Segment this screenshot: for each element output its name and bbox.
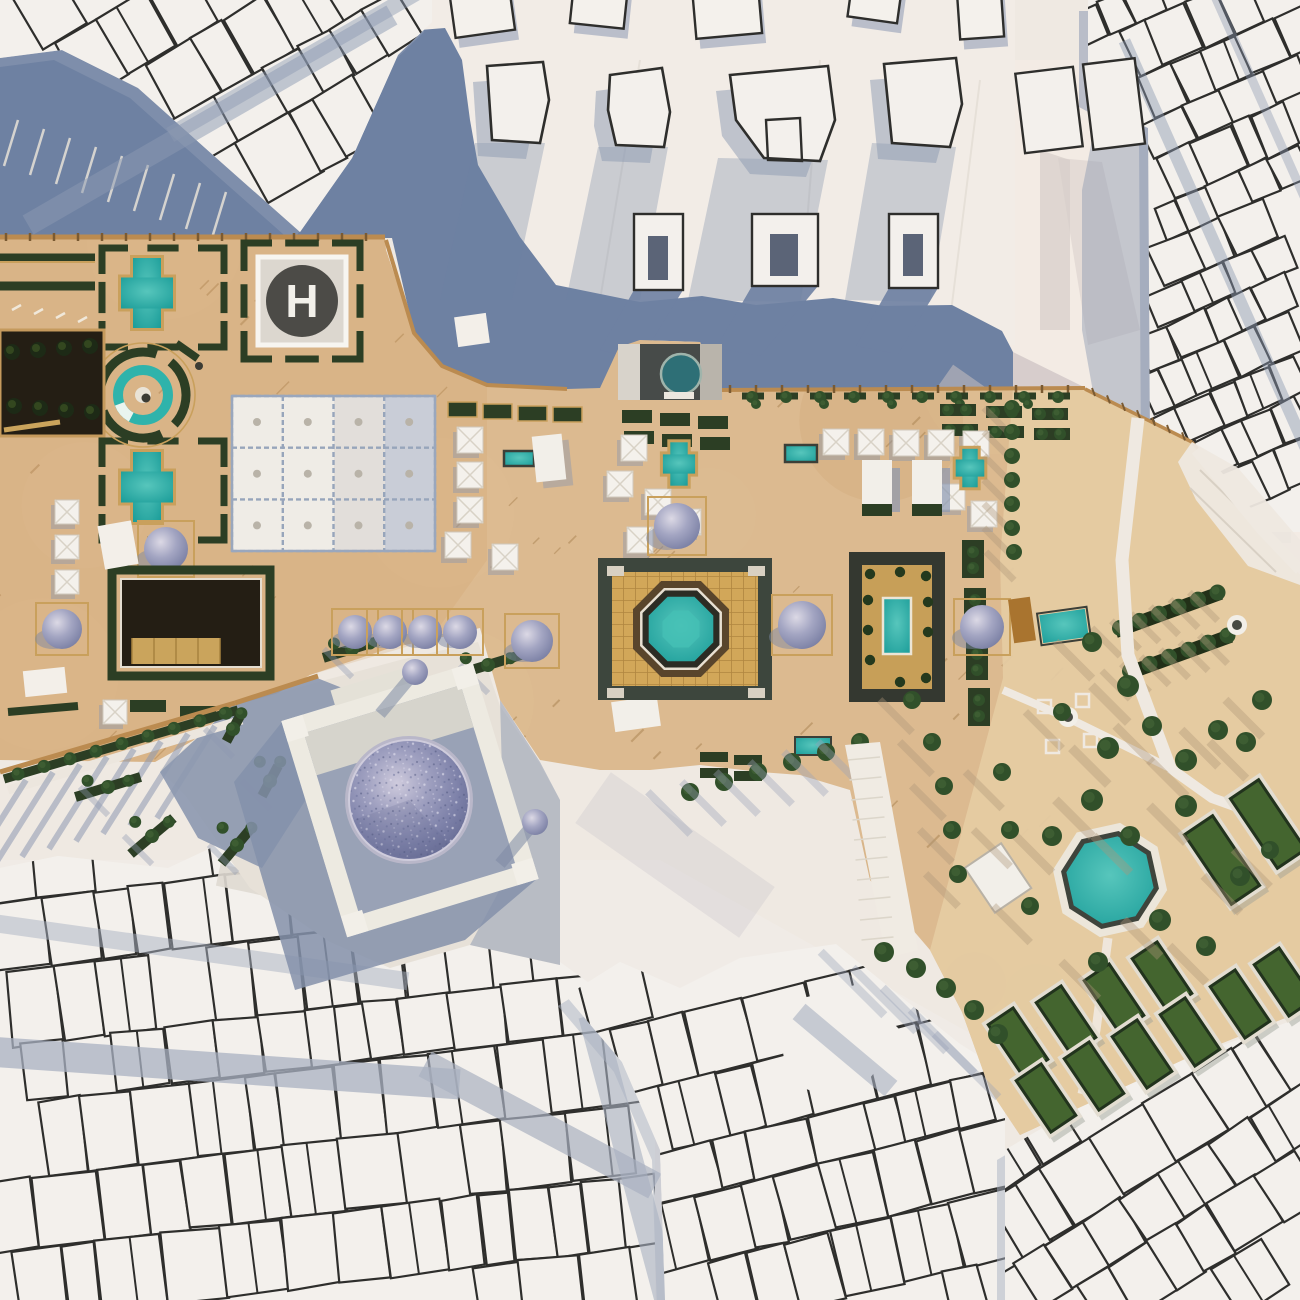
svg-text:H: H bbox=[285, 275, 318, 327]
